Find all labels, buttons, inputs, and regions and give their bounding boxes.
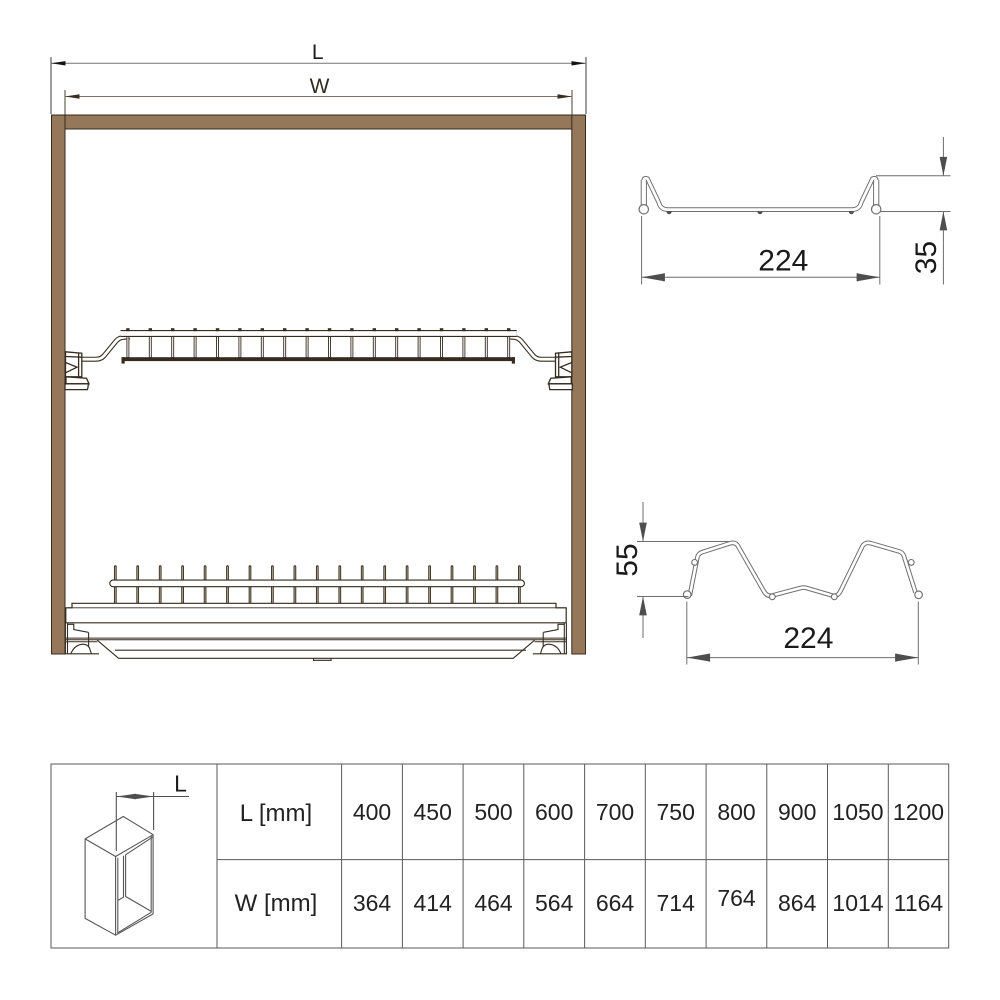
svg-text:L: L <box>312 41 324 64</box>
svg-text:1014: 1014 <box>832 890 883 916</box>
svg-text:600: 600 <box>535 799 573 825</box>
svg-text:1200: 1200 <box>893 799 944 825</box>
svg-text:364: 364 <box>353 890 392 916</box>
svg-text:W: W <box>310 75 330 98</box>
svg-text:500: 500 <box>474 799 512 825</box>
svg-text:564: 564 <box>535 890 574 916</box>
svg-text:750: 750 <box>657 799 695 825</box>
svg-text:W [mm]: W [mm] <box>235 890 318 917</box>
svg-text:900: 900 <box>778 799 816 825</box>
svg-text:224: 224 <box>783 622 833 655</box>
svg-text:224: 224 <box>758 245 808 278</box>
svg-text:714: 714 <box>657 890 696 916</box>
svg-text:1050: 1050 <box>832 799 883 825</box>
svg-text:35: 35 <box>910 241 943 274</box>
svg-text:864: 864 <box>778 890 817 916</box>
svg-text:L: L <box>174 770 187 796</box>
svg-text:1164: 1164 <box>894 890 944 916</box>
svg-text:764: 764 <box>717 885 756 911</box>
svg-text:400: 400 <box>353 799 391 825</box>
svg-text:L [mm]: L [mm] <box>240 800 312 827</box>
svg-text:450: 450 <box>414 799 452 825</box>
svg-text:664: 664 <box>596 890 635 916</box>
svg-text:700: 700 <box>596 799 634 825</box>
svg-text:414: 414 <box>414 890 453 916</box>
svg-text:55: 55 <box>611 543 644 576</box>
svg-text:464: 464 <box>474 890 513 916</box>
svg-text:800: 800 <box>717 799 755 825</box>
